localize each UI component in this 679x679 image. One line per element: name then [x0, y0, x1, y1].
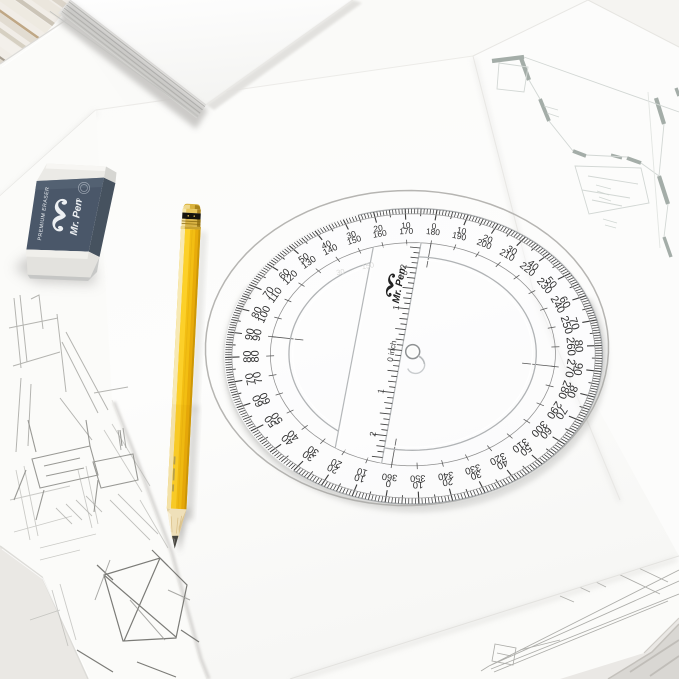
svg-text:170: 170 — [399, 226, 414, 237]
svg-text:180: 180 — [426, 226, 441, 237]
svg-text:350: 350 — [410, 473, 426, 483]
svg-text:260: 260 — [563, 337, 577, 357]
svg-text:80: 80 — [250, 350, 262, 362]
svg-text:30: 30 — [336, 267, 346, 277]
svg-text:90: 90 — [251, 328, 265, 342]
svg-text:360: 360 — [381, 471, 398, 483]
